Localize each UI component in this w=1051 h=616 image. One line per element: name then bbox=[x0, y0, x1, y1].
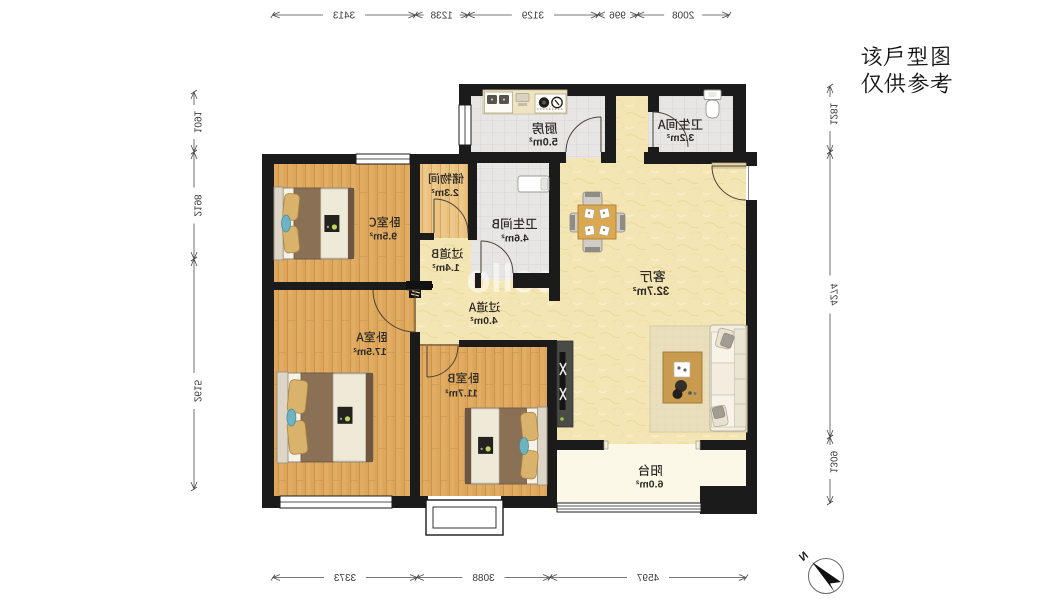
svg-text:1.4m²: 1.4m² bbox=[432, 262, 460, 274]
svg-text:1238: 1238 bbox=[430, 11, 453, 22]
svg-text:3373: 3373 bbox=[333, 573, 356, 584]
svg-text:3413: 3413 bbox=[332, 11, 355, 22]
svg-text:11.7m²: 11.7m² bbox=[445, 387, 478, 399]
svg-text:2198: 2198 bbox=[192, 194, 203, 217]
svg-text:4.0m²: 4.0m² bbox=[470, 315, 498, 327]
svg-text:1091: 1091 bbox=[192, 110, 203, 133]
svg-text:3129: 3129 bbox=[521, 11, 544, 22]
svg-text:1281: 1281 bbox=[828, 102, 839, 125]
svg-text:2615: 2615 bbox=[192, 379, 203, 402]
svg-text:17.5m²: 17.5m² bbox=[353, 346, 387, 358]
svg-text:32.7m²: 32.7m² bbox=[633, 286, 670, 298]
svg-text:4274: 4274 bbox=[828, 283, 839, 306]
svg-text:3088: 3088 bbox=[472, 573, 495, 584]
svg-text:2008: 2008 bbox=[672, 11, 695, 22]
svg-text:6.0m²: 6.0m² bbox=[635, 479, 663, 491]
svg-text:3.2m²: 3.2m² bbox=[666, 132, 694, 144]
svg-text:9.5m²: 9.5m² bbox=[369, 230, 397, 242]
svg-text:N: N bbox=[797, 550, 811, 564]
svg-text:1309: 1309 bbox=[828, 450, 839, 473]
svg-text:4.6m²: 4.6m² bbox=[501, 233, 529, 245]
svg-text:2.3m²: 2.3m² bbox=[431, 187, 459, 199]
svg-text:4597: 4597 bbox=[636, 573, 659, 584]
svg-text:996: 996 bbox=[609, 11, 626, 22]
svg-text:5.0m²: 5.0m² bbox=[529, 137, 558, 149]
